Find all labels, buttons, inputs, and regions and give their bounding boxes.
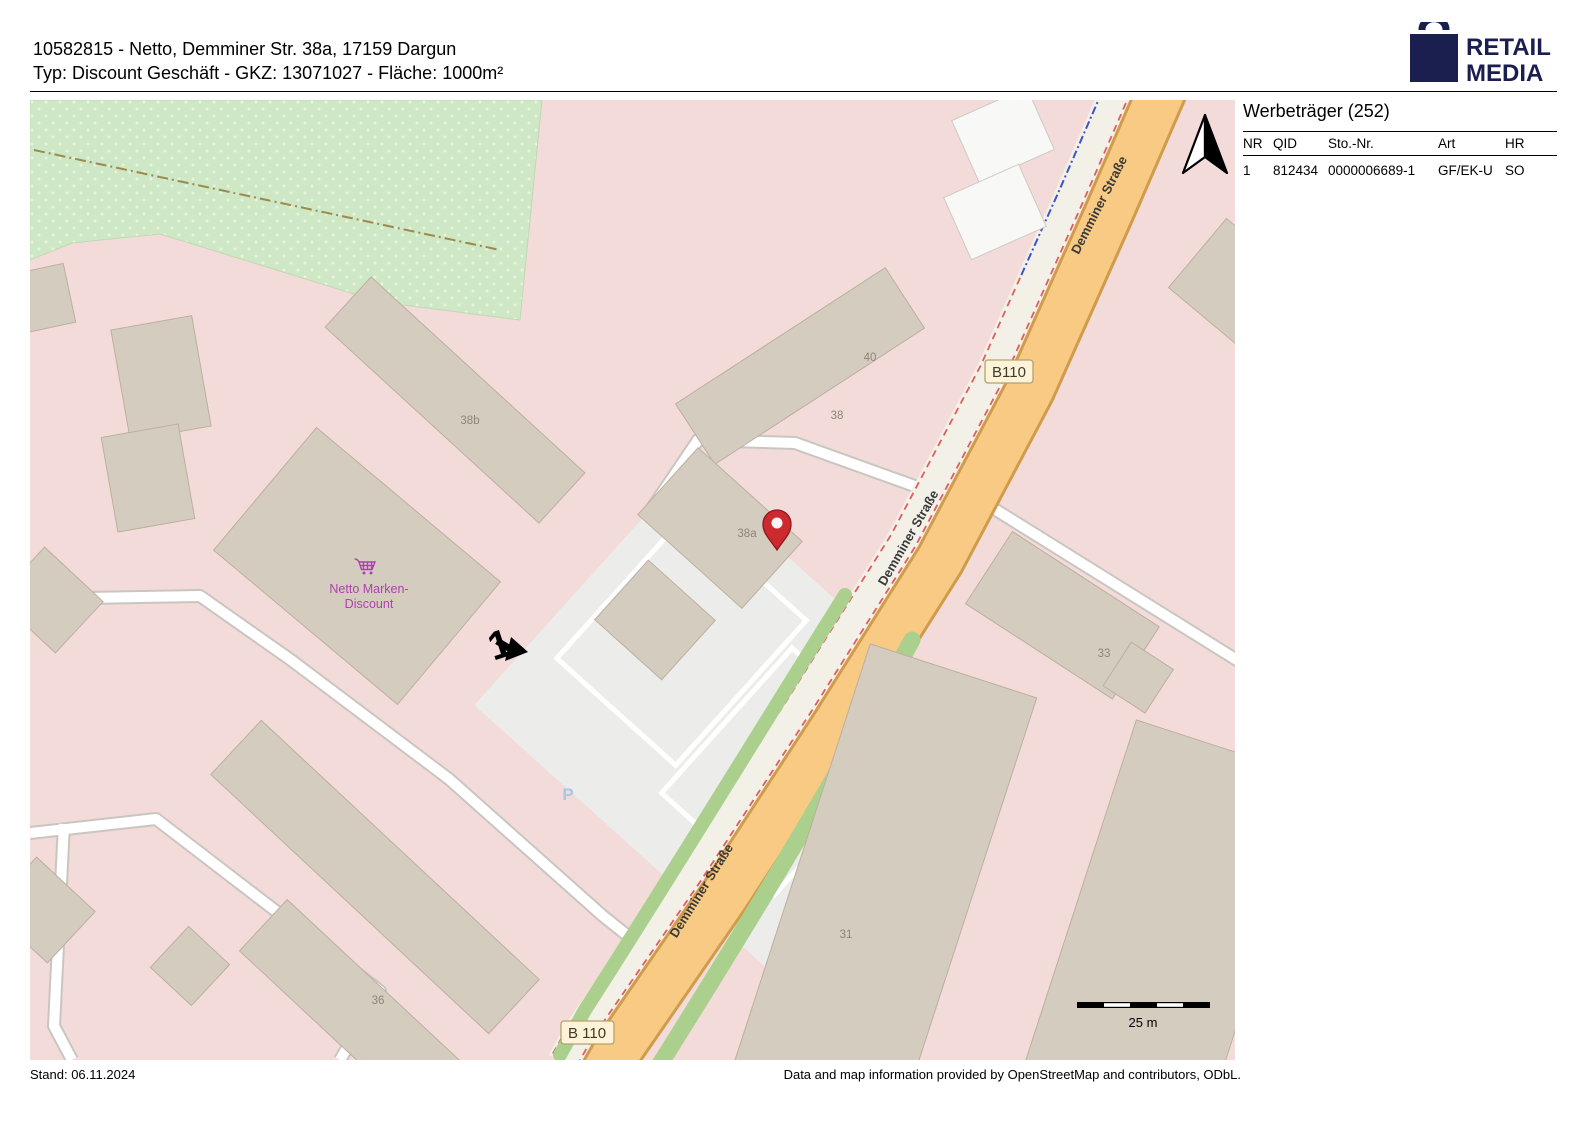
house-number-38b: 38b — [460, 415, 479, 427]
col-header-nr: NR — [1243, 132, 1273, 156]
col-header-qid: QID — [1273, 132, 1328, 156]
house-number-31: 31 — [840, 929, 853, 941]
house-number-38a: 38a — [737, 528, 757, 540]
panel-title: Werbeträger (252) — [1243, 101, 1557, 122]
cell-art: GF/EK-U — [1438, 156, 1505, 179]
footer-date: Stand: 06.11.2024 — [30, 1067, 135, 1082]
col-header-art: Art — [1438, 132, 1505, 156]
logo-word-1: RETAIL — [1466, 34, 1551, 61]
werbetraeger-panel: Werbeträger (252) NR QID Sto.-Nr. Art HR… — [1243, 101, 1557, 178]
svg-text:B 110: B 110 — [568, 1025, 606, 1042]
werbetraeger-table: NR QID Sto.-Nr. Art HR 1 812434 00000066… — [1243, 131, 1557, 178]
svg-text:B110: B110 — [992, 364, 1026, 381]
cell-nr: 1 — [1243, 156, 1273, 179]
map-canvas[interactable]: B110 B 110 Demminer Straße Demminer Stra… — [30, 100, 1235, 1060]
parking-label: P — [562, 785, 573, 804]
house-number-40: 40 — [864, 352, 877, 364]
shopping-bag-icon — [1410, 22, 1458, 82]
house-number-38: 38 — [831, 410, 844, 422]
retail-media-logo: RETAIL MEDIA — [1408, 22, 1568, 88]
report-page: 10582815 - Netto, Demminer Str. 38a, 171… — [0, 0, 1587, 1123]
cell-qid: 812434 — [1273, 156, 1328, 179]
col-header-hr: HR — [1505, 132, 1557, 156]
header-divider — [30, 91, 1557, 92]
route-badge-top: B110 — [985, 360, 1033, 383]
cell-sto: 0000006689-1 — [1328, 156, 1438, 179]
col-header-sto: Sto.-Nr. — [1328, 132, 1438, 156]
table-row[interactable]: 1 812434 0000006689-1 GF/EK-U SO — [1243, 156, 1557, 179]
house-number-33: 33 — [1098, 648, 1111, 660]
route-badge-bottom: B 110 — [561, 1021, 614, 1044]
store-title: 10582815 - Netto, Demminer Str. 38a, 171… — [33, 39, 456, 60]
cell-hr: SO — [1505, 156, 1557, 179]
store-subtitle: Typ: Discount Geschäft - GKZ: 13071027 -… — [33, 63, 503, 84]
netto-label-line1: Netto Marken- — [329, 582, 408, 596]
netto-label-line2: Discount — [345, 597, 394, 611]
scale-label: 25 m — [1129, 1015, 1158, 1030]
footer-attribution: Data and map information provided by Ope… — [784, 1067, 1241, 1082]
house-number-36: 36 — [372, 995, 385, 1007]
logo-word-2: MEDIA — [1466, 60, 1543, 87]
